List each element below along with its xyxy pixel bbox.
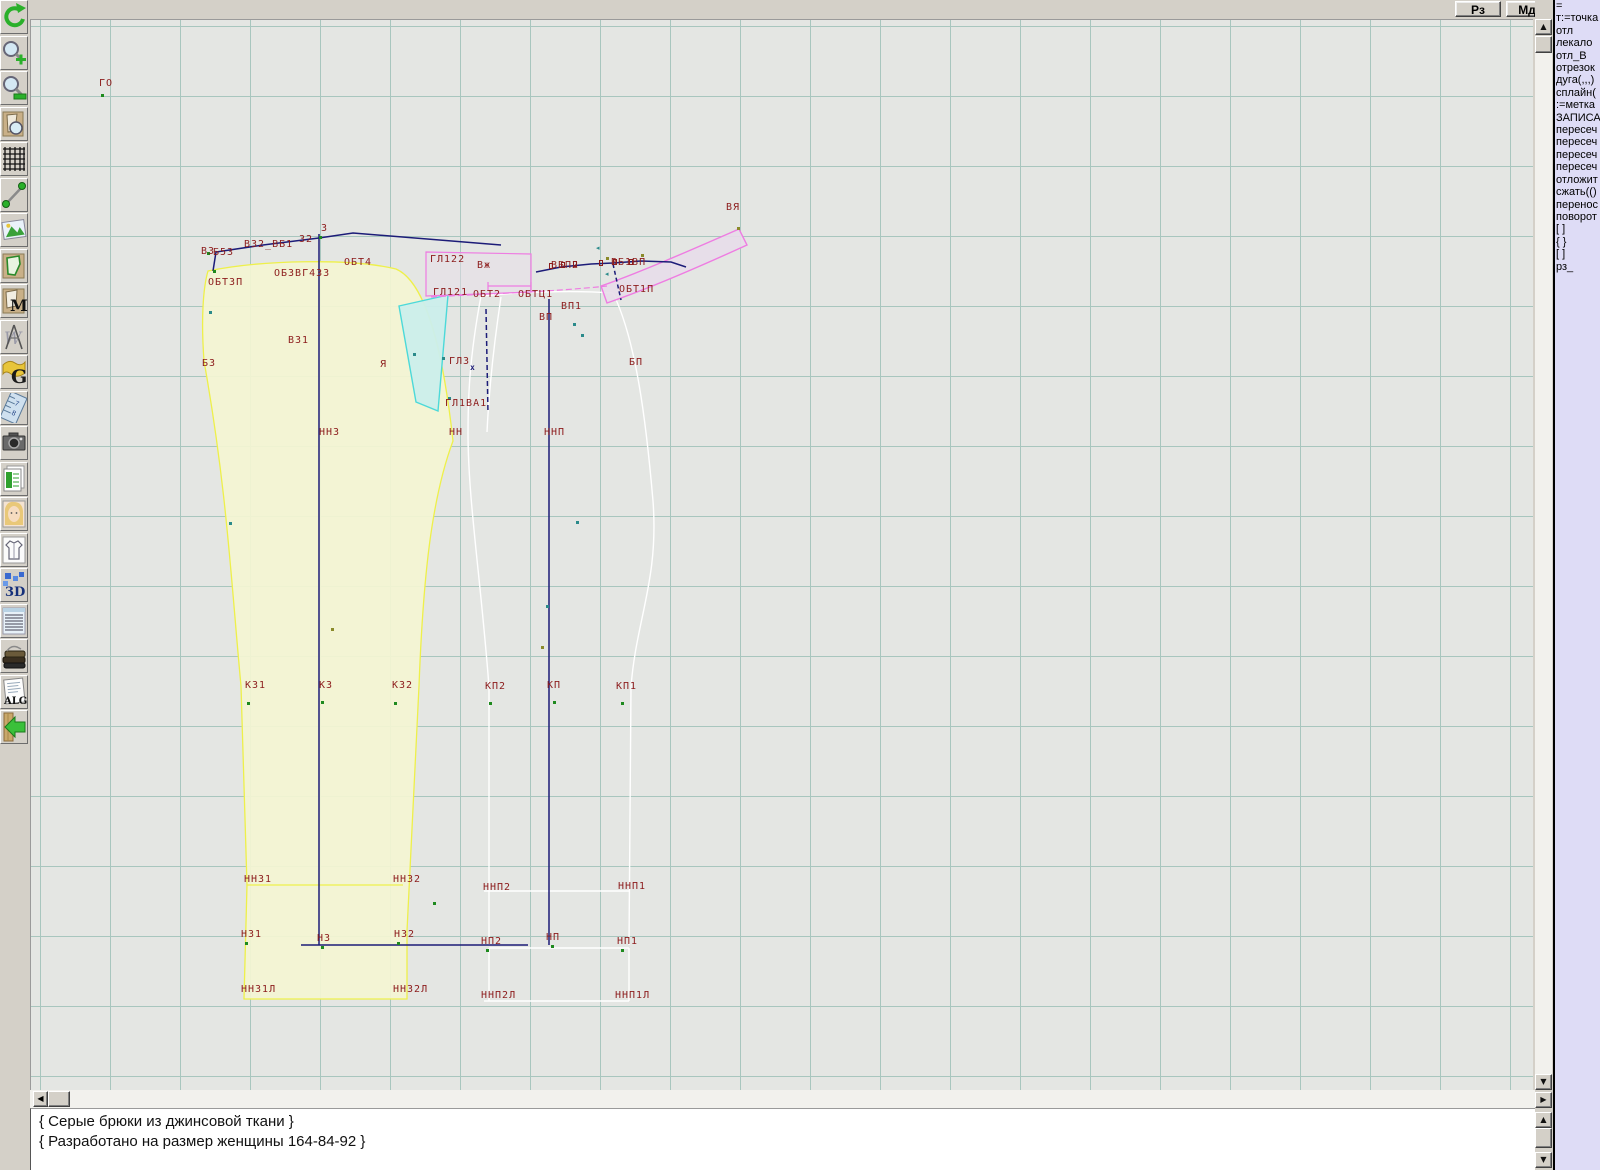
drafting-compass-icon: W <box>1 322 27 352</box>
point-label: КЗ <box>319 680 333 691</box>
command-line[interactable]: = <box>1555 0 1600 12</box>
command-line[interactable]: лекало <box>1555 37 1600 49</box>
point-marker <box>737 227 740 230</box>
command-line[interactable]: :=метка <box>1555 99 1600 111</box>
point-label: ННП2 <box>483 882 511 893</box>
x-marker: х <box>470 363 475 372</box>
ruler-icon: 78 <box>1 393 27 423</box>
canvas-hscroll[interactable]: ◀ <box>30 1090 1535 1108</box>
point-marker <box>621 949 624 952</box>
grid-button[interactable] <box>0 142 28 176</box>
point-label: КЗ2 <box>392 680 413 691</box>
point-label: ОБТЦ1 <box>518 289 553 300</box>
canvas-scroll-left-button[interactable]: ◀ <box>33 1091 48 1107</box>
front-piece[interactable] <box>468 292 654 1001</box>
canvas-vscroll-thumb[interactable] <box>1535 36 1552 53</box>
point-marker <box>546 605 549 608</box>
canvas-hscroll-thumb[interactable] <box>48 1091 70 1107</box>
point-label: Я <box>380 359 387 370</box>
point-marker <box>397 942 400 945</box>
drafting-compass-button[interactable]: W <box>0 320 28 354</box>
point-label: НЗ <box>317 933 331 944</box>
point-marker <box>394 702 397 705</box>
pattern-piece-button[interactable] <box>0 249 28 283</box>
pattern-cad-window: M W G 78 3D ALG Рз Мд <box>0 0 1600 1170</box>
alg-button[interactable]: ALG <box>0 675 28 709</box>
books-icon <box>1 641 27 671</box>
undo-button[interactable] <box>0 0 28 34</box>
status-scroll-down-button[interactable]: ▼ <box>1535 1152 1552 1168</box>
preview-pattern-icon <box>1 109 27 139</box>
canvas-scroll-right-button[interactable]: ▶ <box>1535 1092 1552 1108</box>
exit-button[interactable] <box>0 710 28 744</box>
main-toolbar: M W G 78 3D ALG <box>0 0 30 1170</box>
point-marker <box>541 646 544 649</box>
3d-icon: 3D <box>1 570 27 600</box>
command-line[interactable]: отрезок <box>1555 62 1600 74</box>
table-button[interactable] <box>0 462 28 496</box>
pattern-m-button[interactable]: M <box>0 284 28 318</box>
top-bar: Рз Мд <box>30 0 1553 19</box>
point-label: ННЗ1 <box>244 874 272 885</box>
point-label: ОБТ4 <box>344 257 372 268</box>
command-line[interactable]: перенос <box>1555 199 1600 211</box>
point-label: ОБТЗП <box>208 277 243 288</box>
point-label: ВП <box>539 312 553 323</box>
point-label: ННЗ <box>319 427 340 438</box>
point-label: ГЛ122 <box>430 254 465 265</box>
point-label: ННП2Л <box>481 990 516 1001</box>
point-marker <box>321 701 324 704</box>
point-marker <box>213 270 216 273</box>
3d-button[interactable]: 3D <box>0 568 28 602</box>
canvas-scroll-down-button[interactable]: ▼ <box>1535 1074 1552 1090</box>
point-label: БЗ <box>202 358 216 369</box>
command-line[interactable]: сжать(() <box>1555 186 1600 198</box>
command-line[interactable]: отложит <box>1555 174 1600 186</box>
command-list: =т:=точкаотллекалоотл_Вотрезокдуга(,,,)с… <box>1555 0 1600 273</box>
point-marker <box>321 946 324 949</box>
notch-arrow-marker: ◂ <box>605 270 609 278</box>
zoom-in-button[interactable] <box>0 36 28 70</box>
command-line[interactable]: т:=точка <box>1555 12 1600 24</box>
point-label: ВЗ2_ВБ1 <box>244 239 293 250</box>
command-line[interactable]: пересеч <box>1555 149 1600 161</box>
point-marker <box>229 522 232 525</box>
point-label: Б5З <box>213 247 234 258</box>
notch-arrow-marker: ◂ <box>596 244 600 252</box>
point-label: ГЛ1ВА1 <box>445 398 487 409</box>
status-scroll-up-button[interactable]: ▲ <box>1535 1112 1552 1128</box>
camera-icon <box>1 428 27 458</box>
command-line[interactable]: [ ] <box>1555 223 1600 235</box>
point-label: ННЗ2Л <box>393 984 428 995</box>
point-marker <box>209 311 212 314</box>
point-label: Вж <box>477 260 491 271</box>
zoom-out-icon <box>1 73 27 103</box>
point-label: НП1 <box>617 936 638 947</box>
command-line[interactable]: { } <box>1555 236 1600 248</box>
status-line-2: { Разработано на размер женщины 164-84-9… <box>39 1133 365 1150</box>
point-label: ГЛ121 <box>433 287 468 298</box>
point-label: ОБТ1П <box>619 284 654 295</box>
books-button[interactable] <box>0 639 28 673</box>
command-line[interactable]: пересеч <box>1555 136 1600 148</box>
point-label: ННП1 <box>618 881 646 892</box>
svg-text:ALG: ALG <box>3 696 27 707</box>
zoom-in-icon <box>1 38 27 68</box>
garment-sketch-button[interactable] <box>0 533 28 567</box>
point-marker <box>101 94 104 97</box>
point-label: ВЯ <box>726 202 740 213</box>
command-line[interactable]: пересеч <box>1555 124 1600 136</box>
point-label: КЗ1 <box>245 680 266 691</box>
point-marker <box>486 949 489 952</box>
point-label: З <box>321 223 328 234</box>
point-marker <box>621 702 624 705</box>
point-label: ОБЗВГ4ЗЗ <box>274 268 330 279</box>
preview-pattern-button[interactable] <box>0 107 28 141</box>
g-letter-icon: G <box>1 357 27 387</box>
point-label: ННЗ1Л <box>241 984 276 995</box>
ruler-button[interactable]: 78 <box>0 391 28 425</box>
undo-icon <box>1 2 27 32</box>
image-button[interactable] <box>0 213 28 247</box>
command-line[interactable]: сплайн( <box>1555 87 1600 99</box>
point-marker <box>581 334 584 337</box>
point-marker <box>576 521 579 524</box>
command-line[interactable]: ЗАПИСА <box>1555 112 1600 124</box>
canvas-scroll-up-button[interactable]: ▲ <box>1535 19 1552 35</box>
point-marker <box>319 236 322 239</box>
point-marker <box>245 942 248 945</box>
point-label: ОБТ2 <box>473 289 501 300</box>
command-line[interactable]: пересеч <box>1555 161 1600 173</box>
alg-icon: ALG <box>1 677 27 707</box>
point-label: НП2 <box>481 936 502 947</box>
point-marker <box>553 701 556 704</box>
point-marker <box>573 323 576 326</box>
drawing-canvas[interactable]: х◂◂ ГОЗВЗБ5ЗВЗ2_ВБ1З2ОБТ4ОБТЗПОБЗВГ4ЗЗГЛ… <box>30 19 1533 1090</box>
point-label: КП <box>547 680 561 691</box>
point-label: НП <box>546 932 560 943</box>
command-line[interactable]: дуга(,,,) <box>1555 74 1600 86</box>
garment-sketch-icon <box>1 535 27 565</box>
rz-mode-button[interactable]: Рз <box>1455 1 1501 17</box>
point-label: БП <box>629 357 643 368</box>
point-label: ВП1 <box>561 301 582 312</box>
point-label: ВБ1ВП <box>611 257 646 268</box>
command-line[interactable]: отл <box>1555 25 1600 37</box>
point-label: ГО <box>99 78 113 89</box>
dart-square-marker <box>599 260 603 266</box>
measure-line-button[interactable] <box>0 178 28 212</box>
point-label: ВЗ1 <box>288 335 309 346</box>
canvas-vscroll-track[interactable] <box>1535 53 1552 1074</box>
point-marker <box>606 257 609 260</box>
notes-icon <box>1 606 27 636</box>
point-label: ННЗ2 <box>393 874 421 885</box>
point-marker <box>433 902 436 905</box>
camera-button[interactable] <box>0 426 28 460</box>
point-label: ННП1Л <box>615 990 650 1001</box>
point-label: КП2 <box>485 681 506 692</box>
point-marker <box>489 702 492 705</box>
zoom-out-button[interactable] <box>0 71 28 105</box>
pattern-m-icon: M <box>1 286 27 316</box>
model-photo-button[interactable] <box>0 497 28 531</box>
table-icon <box>1 464 27 494</box>
point-label: КП1 <box>616 681 637 692</box>
status-line-1: { Серые брюки из джинсовой ткани } <box>39 1113 294 1130</box>
g-letter-button[interactable]: G <box>0 355 28 389</box>
exit-icon <box>1 712 27 742</box>
svg-text:M: M <box>10 296 27 315</box>
scrollbar-column: ▲ ▼ ▶ ▲ ▼ <box>1535 0 1553 1170</box>
point-label: ННП <box>544 427 565 438</box>
command-panel[interactable]: =т:=точкаотллекалоотл_Вотрезокдуга(,,,)с… <box>1553 0 1600 1170</box>
model-photo-icon <box>1 499 27 529</box>
notes-button[interactable] <box>0 604 28 638</box>
point-label: НН <box>449 427 463 438</box>
point-marker <box>247 702 250 705</box>
point-marker <box>551 945 554 948</box>
point-marker <box>413 353 416 356</box>
svg-text:G: G <box>11 366 27 387</box>
command-line[interactable]: [ ] <box>1555 248 1600 260</box>
image-icon <box>1 215 27 245</box>
command-line[interactable]: рз_ <box>1555 261 1600 273</box>
command-line[interactable]: поворот <box>1555 211 1600 223</box>
measure-line-icon <box>1 180 27 210</box>
grid-icon <box>1 144 27 174</box>
point-label: З2 <box>299 234 313 245</box>
command-line[interactable]: отл_В <box>1555 50 1600 62</box>
status-panel: { Серые брюки из джинсовой ткани } { Раз… <box>30 1108 1535 1170</box>
point-marker <box>331 628 334 631</box>
point-label: НЗ1 <box>241 929 262 940</box>
point-label: ГЛЗ <box>449 356 470 367</box>
pattern-piece-icon <box>1 251 27 281</box>
point-label: ВБП2 <box>551 260 579 271</box>
point-label: НЗ2 <box>394 929 415 940</box>
point-marker <box>442 357 445 360</box>
svg-text:3D: 3D <box>5 585 25 600</box>
status-vscroll-thumb[interactable] <box>1535 1128 1552 1148</box>
